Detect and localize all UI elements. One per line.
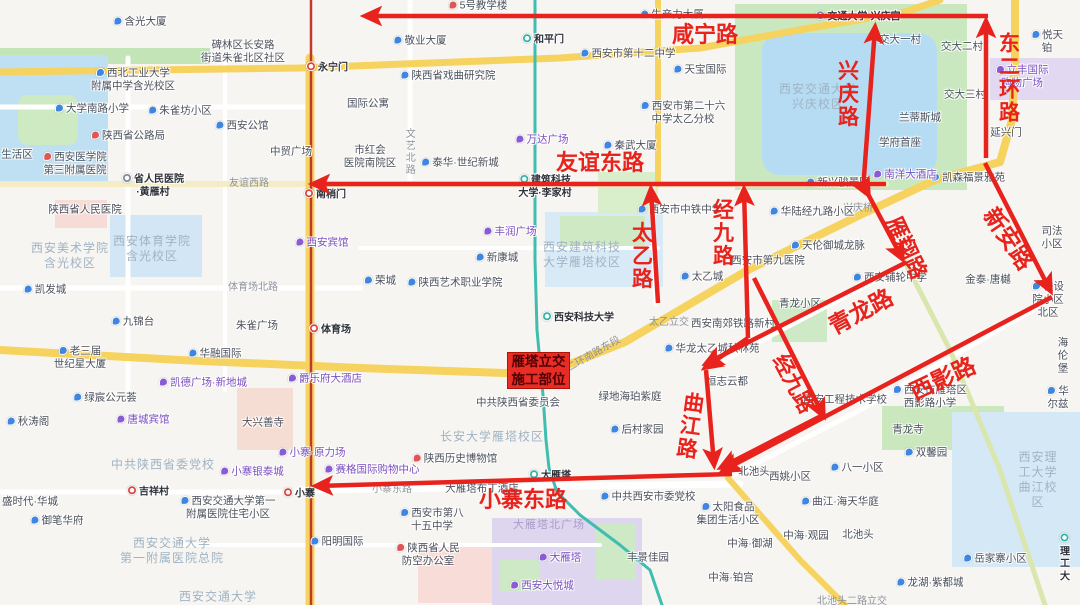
construction-site-line1: 雁塔立交: [508, 353, 569, 371]
annotation-road-name: 咸宁路: [672, 24, 738, 46]
annotation-road-name: 经九路: [712, 199, 733, 268]
route-arrow: [706, 370, 714, 464]
annotation-arrows-layer: [0, 0, 1080, 605]
annotation-road-name: 太乙路: [631, 222, 652, 291]
annotation-road-name: 小寨东路: [479, 489, 567, 511]
route-arrow: [744, 190, 748, 338]
route-arrow: [863, 28, 875, 190]
annotation-road-name: 东二环路: [998, 32, 1019, 124]
construction-site-line2: 施工部位: [508, 371, 569, 389]
route-arrow: [722, 415, 823, 467]
route-arrow: [317, 474, 732, 486]
route-arrow: [724, 297, 1052, 470]
annotation-road-name: 友谊东路: [556, 152, 644, 174]
map-canvas[interactable]: 含光大厦碑林区长安路 街道朱雀北区社区西北工业大学 附属中学含光校区大学南路小学…: [0, 0, 1080, 605]
annotation-road-name: 兴庆路: [837, 60, 858, 129]
construction-site-badge: 雁塔立交 施工部位: [507, 352, 570, 389]
